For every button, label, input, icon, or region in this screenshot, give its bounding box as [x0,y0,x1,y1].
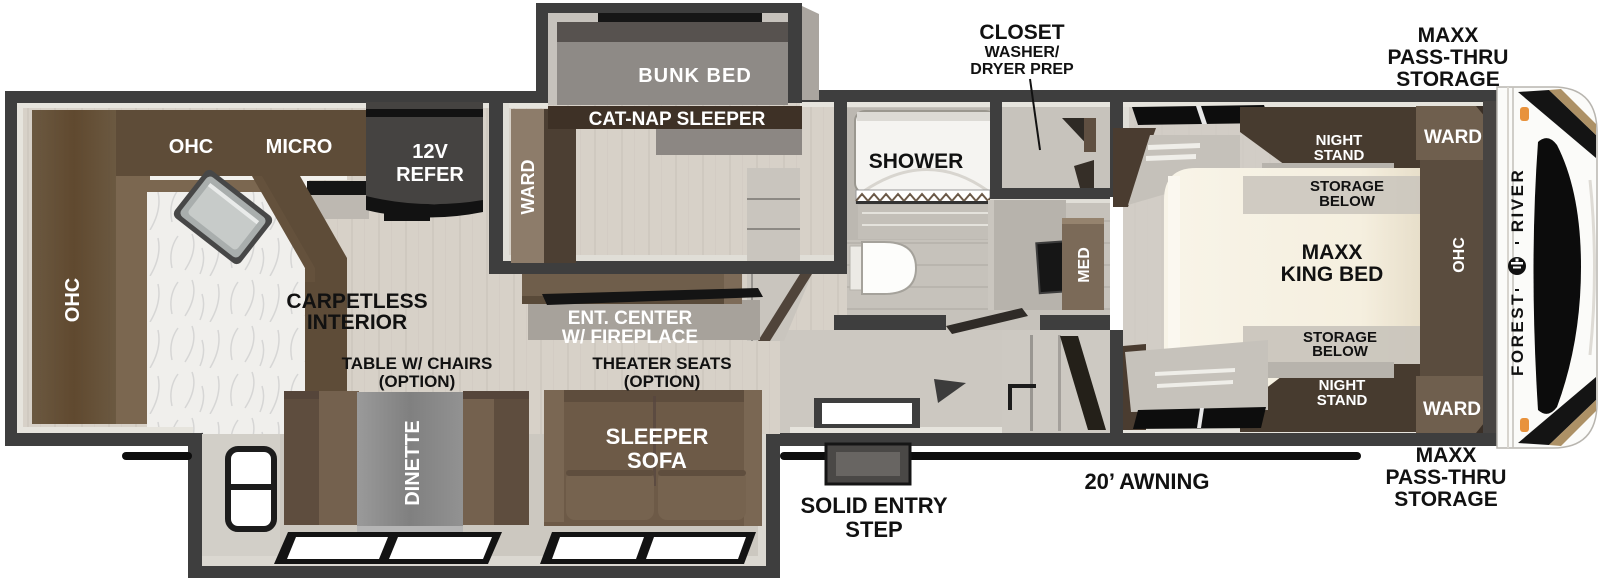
svg-text:PASS-THRU: PASS-THRU [1386,466,1507,489]
svg-text:BUNK BED: BUNK BED [638,65,752,87]
svg-text:DRYER PREP: DRYER PREP [970,61,1074,78]
svg-text:20’ AWNING: 20’ AWNING [1084,469,1209,494]
svg-text:ENT. CENTER: ENT. CENTER [568,308,693,329]
svg-text:RIVER: RIVER [1508,168,1527,232]
svg-text:BELOW: BELOW [1312,343,1369,360]
svg-text:CARPETLESS: CARPETLESS [286,290,427,313]
svg-text:CAT-NAP SLEEPER: CAT-NAP SLEEPER [589,109,766,130]
svg-text:OHC: OHC [1451,237,1468,273]
svg-text:MED: MED [1076,247,1093,283]
svg-text:WARD: WARD [518,160,538,215]
svg-text:STEP: STEP [845,517,902,542]
svg-text:MAXX: MAXX [1416,444,1477,467]
svg-text:OHC: OHC [62,278,84,322]
svg-text:WARD: WARD [1423,399,1481,420]
svg-text:MICRO: MICRO [266,136,333,158]
svg-text:SOLID ENTRY: SOLID ENTRY [800,493,947,518]
svg-text:MAXX: MAXX [1418,24,1479,47]
svg-text:SHOWER: SHOWER [869,150,964,173]
svg-text:(OPTION): (OPTION) [379,372,456,391]
svg-text:OHC: OHC [169,136,213,158]
svg-text:PASS-THRU: PASS-THRU [1388,46,1509,69]
svg-text:INTERIOR: INTERIOR [307,311,407,334]
svg-text:STAND: STAND [1314,147,1365,164]
svg-text:FOREST: FOREST [1508,292,1527,376]
svg-text:DINETTE: DINETTE [402,420,424,506]
svg-text:STORAGE: STORAGE [1394,488,1497,511]
svg-text:SOFA: SOFA [627,448,687,473]
svg-text:SLEEPER: SLEEPER [606,424,709,449]
svg-text:REFER: REFER [396,164,464,186]
svg-text:W/ FIREPLACE: W/ FIREPLACE [562,327,698,348]
svg-text:MAXX: MAXX [1302,241,1363,264]
svg-text:CLOSET: CLOSET [979,21,1064,44]
svg-text:WASHER/: WASHER/ [985,44,1060,61]
svg-text:TABLE W/ CHAIRS: TABLE W/ CHAIRS [342,354,493,373]
svg-text:KING BED: KING BED [1281,263,1384,286]
svg-text:STAND: STAND [1317,392,1368,409]
svg-text:WARD: WARD [1424,127,1482,148]
svg-text:12V: 12V [412,141,448,163]
svg-text:BELOW: BELOW [1319,193,1376,210]
svg-text:STORAGE: STORAGE [1396,68,1499,91]
svg-text:(OPTION): (OPTION) [624,372,701,391]
svg-text:THEATER SEATS: THEATER SEATS [592,354,731,373]
